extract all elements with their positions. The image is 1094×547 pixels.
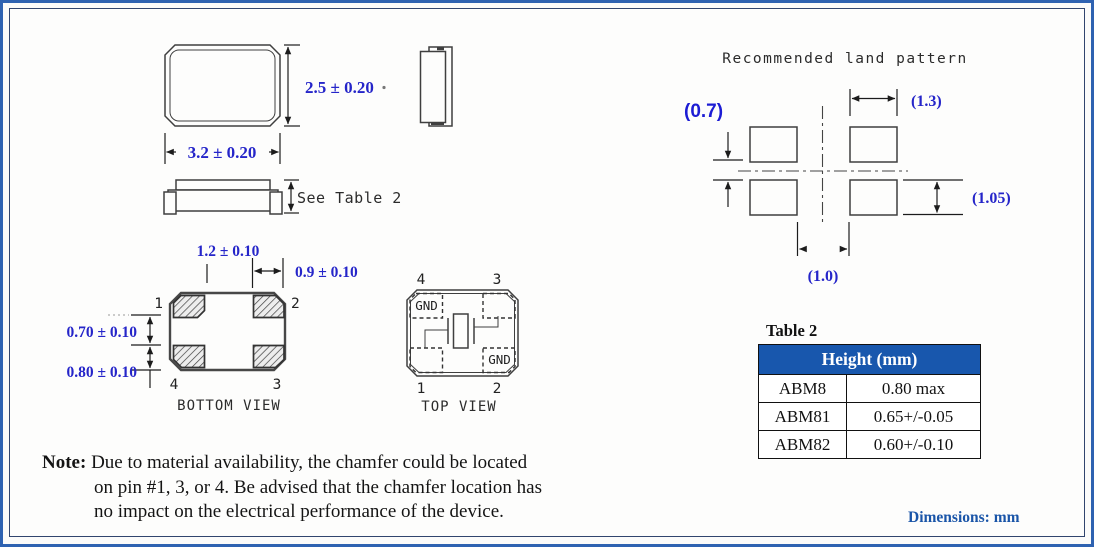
land-dim-pad-width: (1.3) (850, 89, 942, 116)
table-header-row: Height (mm) (759, 345, 981, 375)
bottom-view-title: BOTTOM VIEW (177, 398, 281, 414)
bottom-pin-1-label: 1 (154, 296, 163, 312)
pad-4 (174, 346, 205, 368)
bottom-view-drawing: 1 2 3 4 BOTTOM VIEW 1.2 ± 0.10 0.9 ± 0.1… (66, 243, 358, 414)
land-pattern-title: Recommended land pattern (722, 51, 968, 67)
height-dimension: 2.5 ± 0.20 (284, 45, 386, 126)
model-cell: ABM8 (759, 375, 847, 403)
top-view-drawing: GND GND 4 3 1 2 TOP VIEW (407, 272, 518, 415)
height-cell: 0.65+/-0.05 (847, 403, 981, 431)
model-cell: ABM81 (759, 403, 847, 431)
table-row: ABM8 0.80 max (759, 375, 981, 403)
width-dimension: 3.2 ± 0.20 (165, 133, 280, 164)
package-lid-outline (170, 50, 275, 121)
pad-2 (254, 296, 285, 318)
dim-height-label: 2.5 ± 0.20 (305, 78, 374, 97)
land-dim-pad-height: (1.05) (903, 180, 1011, 215)
land-pattern-drawing: Recommended land pattern (1.3) (0.7) (684, 51, 1011, 285)
top-pin-1-label: 1 (417, 381, 426, 397)
model-cell: ABM82 (759, 431, 847, 459)
table-2-caption: Table 2 (766, 321, 817, 341)
pad-1 (174, 296, 205, 318)
note-line-1: Due to material availability, the chamfe… (91, 452, 527, 473)
see-table-2-label: See Table 2 (297, 189, 402, 207)
package-body-outline (165, 45, 280, 126)
chamfer-note: Note: Due to material availability, the … (42, 451, 602, 525)
top-view-title: TOP VIEW (421, 399, 496, 415)
dim-width-label: 3.2 ± 0.20 (188, 143, 257, 162)
top-pin-4-label: 4 (417, 272, 426, 288)
top-pin-2-label: 2 (493, 381, 502, 397)
stray-dot (382, 86, 385, 89)
land-pad-top-left (750, 127, 797, 162)
table-header-cell: Height (mm) (759, 345, 981, 375)
thickness-dimension: See Table 2 (284, 180, 402, 213)
land-dim-col-gap: (1.0) (798, 222, 850, 285)
note-label: Note: (42, 452, 86, 473)
package-outline-view: 2.5 ± 0.20 3.2 ± 0.20 (165, 45, 386, 164)
land-pad-bottom-right (850, 180, 897, 215)
land-dim-row-gap: (0.7) (684, 101, 743, 207)
land-dim-pad-width-label: (1.3) (911, 93, 942, 110)
table-row: ABM81 0.65+/-0.05 (759, 403, 981, 431)
bottom-pin-3-label: 3 (273, 377, 282, 393)
top-pin-3-label: 3 (493, 272, 502, 288)
land-pad-bottom-left (750, 180, 797, 215)
height-table: Height (mm) ABM8 0.80 max ABM81 0.65+/-0… (758, 344, 981, 459)
pad-3 (254, 346, 285, 368)
height-cell: 0.60+/-0.10 (847, 431, 981, 459)
land-dim-col-gap-label: (1.0) (808, 268, 839, 285)
gnd-label-pad2: GND (488, 352, 511, 367)
package-side-view: See Table 2 (164, 180, 402, 214)
datasheet-figure-page: 2.5 ± 0.20 3.2 ± 0.20 (0, 0, 1094, 547)
bottom-pin-4-label: 4 (170, 377, 179, 393)
gnd-label-pad4: GND (415, 298, 438, 313)
table-row: ABM82 0.60+/-0.10 (759, 431, 981, 459)
dim-pad-width-label: 0.9 ± 0.10 (295, 264, 358, 281)
dim-inner-gap-label: 1.2 ± 0.10 (197, 243, 260, 260)
note-line-2: on pin #1, 3, or 4. Be advised that the … (94, 477, 542, 498)
units-label: Dimensions: mm (908, 509, 1028, 527)
height-cell: 0.80 max (847, 375, 981, 403)
land-dim-row-gap-label: (0.7) (684, 101, 723, 122)
note-line-3: no impact on the electrical performance … (94, 501, 504, 522)
bottom-pin-2-label: 2 (291, 296, 300, 312)
package-end-view (421, 47, 453, 126)
dim-pad-height-label: 0.80 ± 0.10 (66, 364, 137, 381)
pad-height-dimensions: 0.70 ± 0.10 0.80 ± 0.10 (66, 315, 161, 388)
land-dim-pad-height-label: (1.05) (972, 190, 1011, 207)
land-pad-top-right (850, 127, 897, 162)
dim-row-gap-label: 0.70 ± 0.10 (66, 324, 137, 341)
pad-gap-dimension: 1.2 ± 0.10 0.9 ± 0.10 (197, 243, 358, 288)
